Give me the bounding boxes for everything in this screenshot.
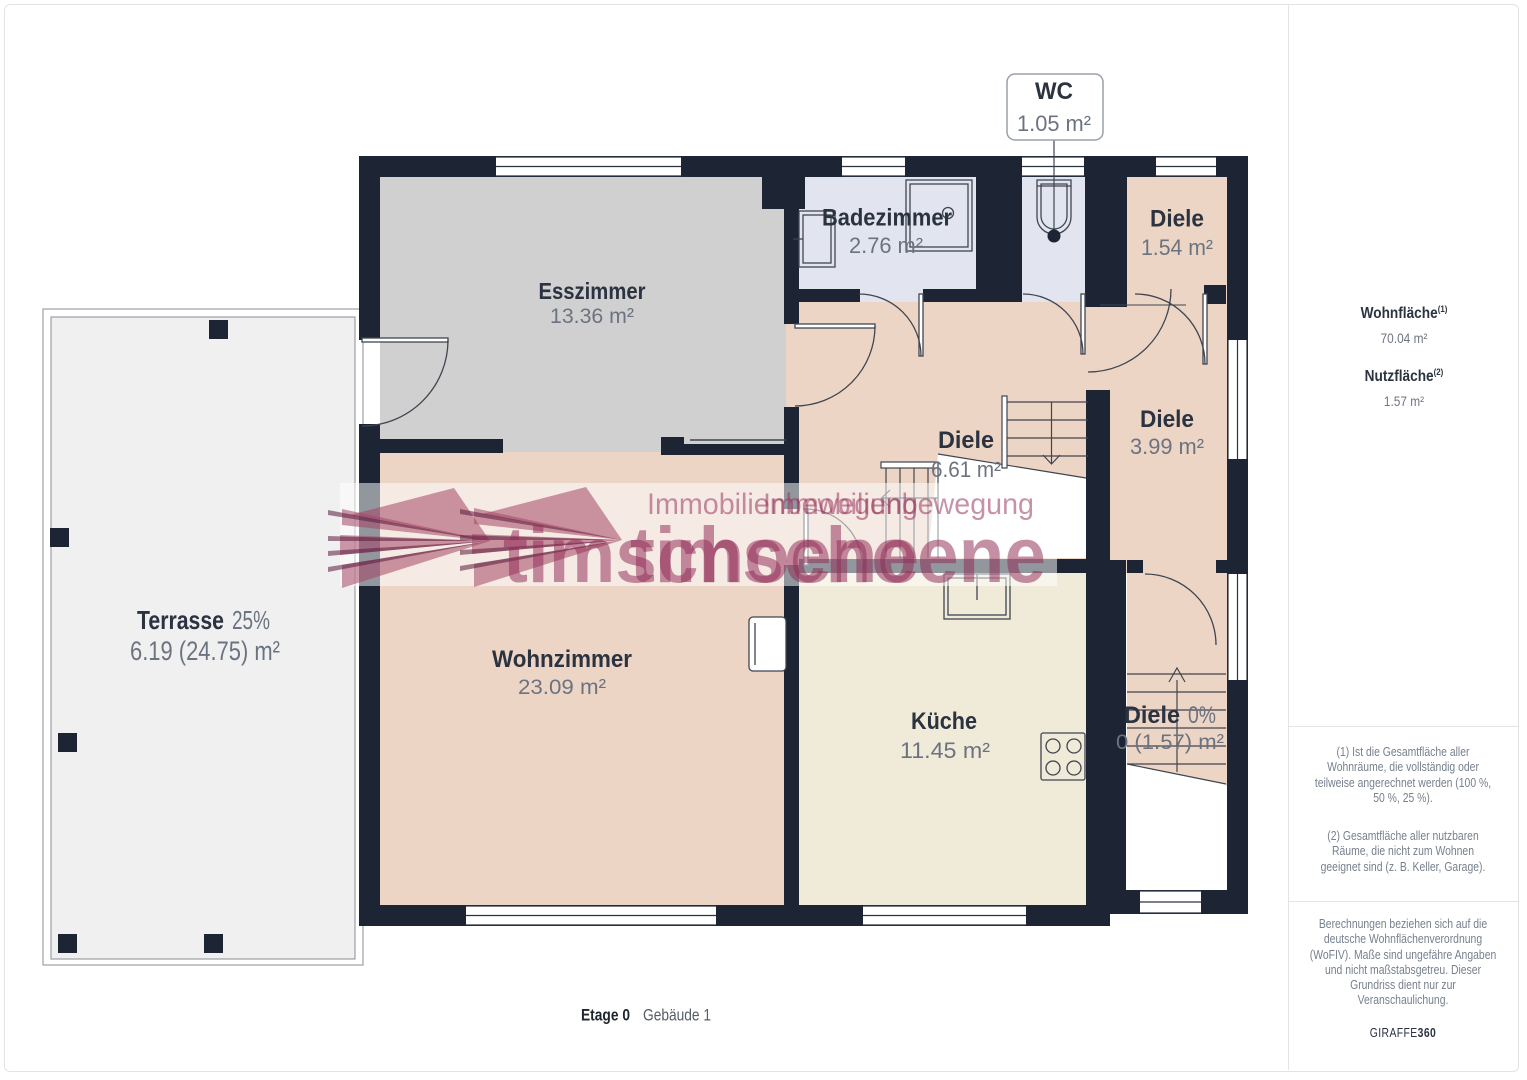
svg-text:Badezimmer: Badezimmer: [822, 205, 952, 232]
svg-text:11.45 m²: 11.45 m²: [900, 738, 990, 763]
svg-text:23.09 m²: 23.09 m²: [518, 676, 606, 699]
svg-text:25%: 25%: [232, 605, 270, 635]
svg-text:1.54 m²: 1.54 m²: [1141, 235, 1213, 260]
svg-text:Gebäude 1: Gebäude 1: [643, 1007, 711, 1025]
svg-text:timschoene: timschoene: [630, 510, 1046, 599]
svg-text:Diele: Diele: [1150, 206, 1204, 233]
svg-text:Diele: Diele: [1124, 702, 1180, 729]
svg-text:Terrasse: Terrasse: [137, 605, 224, 635]
svg-text:Etage 0: Etage 0: [581, 1007, 630, 1025]
svg-text:3.99 m²: 3.99 m²: [1130, 434, 1204, 459]
svg-text:Diele: Diele: [1140, 406, 1194, 433]
svg-text:0 (1.57) m²: 0 (1.57) m²: [1116, 731, 1224, 754]
svg-text:0%: 0%: [1188, 702, 1216, 729]
svg-text:Diele: Diele: [938, 427, 994, 454]
svg-text:13.36 m²: 13.36 m²: [550, 305, 634, 328]
svg-text:6.19 (24.75) m²: 6.19 (24.75) m²: [130, 636, 280, 666]
svg-text:Wohnzimmer: Wohnzimmer: [492, 646, 632, 673]
svg-text:Küche: Küche: [911, 708, 977, 735]
svg-text:Esszimmer: Esszimmer: [539, 278, 646, 304]
svg-text:WC: WC: [1035, 78, 1073, 105]
svg-text:1.05 m²: 1.05 m²: [1017, 111, 1091, 136]
svg-text:2.76 m²: 2.76 m²: [849, 233, 923, 258]
svg-text:6.61 m²: 6.61 m²: [931, 457, 1001, 482]
